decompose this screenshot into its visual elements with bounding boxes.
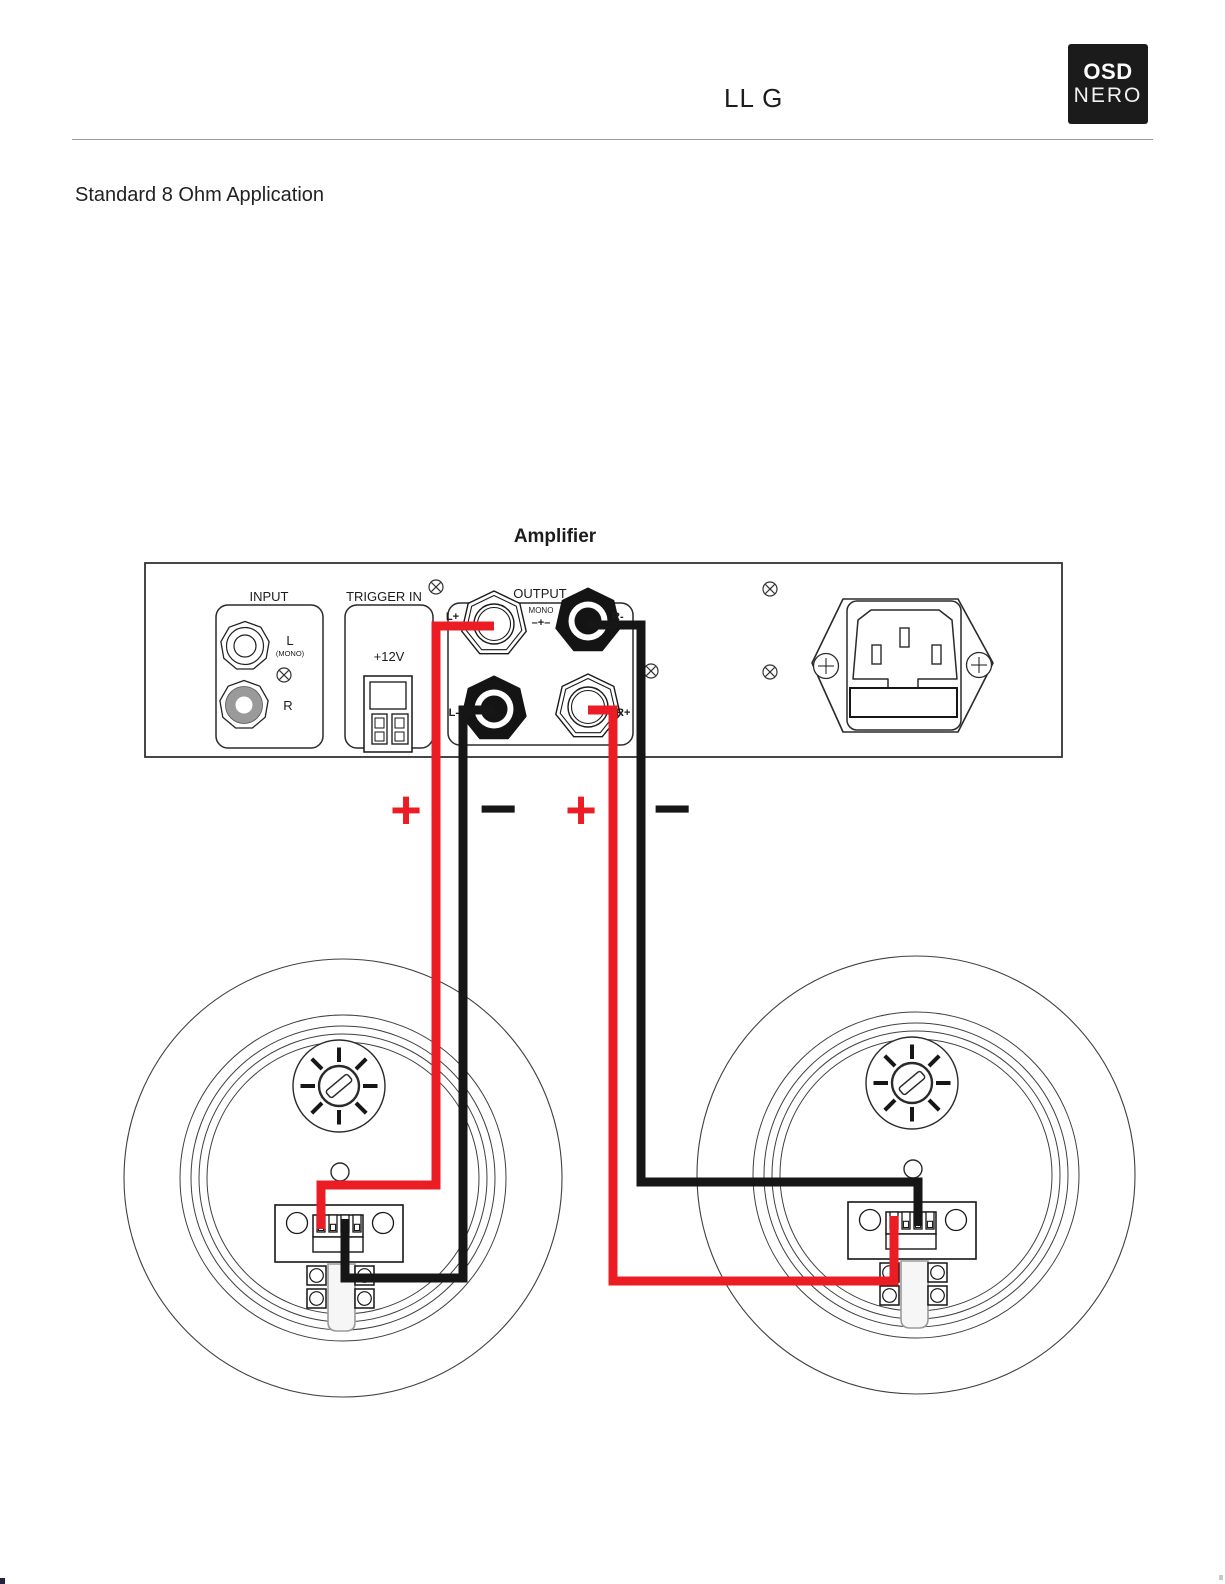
- screw-icon: [763, 665, 777, 679]
- input-label: INPUT: [250, 589, 289, 604]
- right-speaker: [697, 956, 1135, 1394]
- screw-icon: [429, 580, 443, 594]
- screw-icon: [644, 664, 658, 678]
- logo-brand-text: OSD: [1083, 60, 1132, 83]
- amplifier-rear-panel: INPUT L (MONO) R TRIGGER IN +12V: [145, 563, 1062, 757]
- input-section: INPUT L (MONO) R: [216, 589, 323, 748]
- document-code: LL G: [724, 83, 783, 114]
- rca-jack-right: [220, 681, 268, 729]
- osd-nero-logo: OSD NERO: [1068, 44, 1148, 124]
- inlet-screw-icon: [967, 653, 992, 678]
- trigger-in-section: TRIGGER IN +12V: [345, 589, 433, 752]
- trigger-voltage-label: +12V: [374, 649, 405, 664]
- polarity-minus-right: −: [653, 771, 692, 845]
- trigger-connector: [364, 676, 412, 752]
- rca-jack-left-mono: [221, 622, 269, 670]
- jack-right-label: R: [283, 698, 292, 713]
- wiring-diagram: Amplifier INPUT L (MONO) R TRIGGER IN +1…: [0, 0, 1225, 1584]
- manual-page: { "header": { "doc_code": "LL G", "logo"…: [0, 0, 1225, 1584]
- post-label-l-minus: L-: [449, 707, 460, 719]
- output-label: OUTPUT: [513, 586, 567, 601]
- polarity-plus-right: +: [565, 780, 597, 840]
- output-section: OUTPUT MONO –+– L+ R- L- R+: [446, 586, 633, 745]
- inlet-screw-icon: [814, 654, 839, 679]
- jack-left-label: L: [286, 633, 293, 648]
- iec-power-inlet: [812, 599, 993, 732]
- logo-series-text: NERO: [1074, 83, 1143, 108]
- jack-left-sublabel: (MONO): [276, 649, 305, 658]
- screw-icon: [763, 582, 777, 596]
- polarity-minus-left: −: [479, 771, 518, 845]
- fuse-drawer: [850, 688, 957, 717]
- mono-polarity-label: –+–: [532, 617, 551, 629]
- amplifier-label: Amplifier: [514, 526, 597, 547]
- polarity-plus-left: +: [390, 780, 422, 840]
- trigger-in-label: TRIGGER IN: [346, 589, 422, 604]
- mono-label: MONO: [529, 606, 554, 615]
- screw-icon: [277, 668, 291, 682]
- page-title: Standard 8 Ohm Application: [75, 184, 324, 207]
- post-label-r-plus: R+: [616, 707, 630, 719]
- header-divider: [72, 139, 1153, 140]
- wire-right-positive: [588, 710, 894, 1281]
- post-label-l-plus: L+: [446, 611, 459, 623]
- left-speaker: [124, 959, 562, 1397]
